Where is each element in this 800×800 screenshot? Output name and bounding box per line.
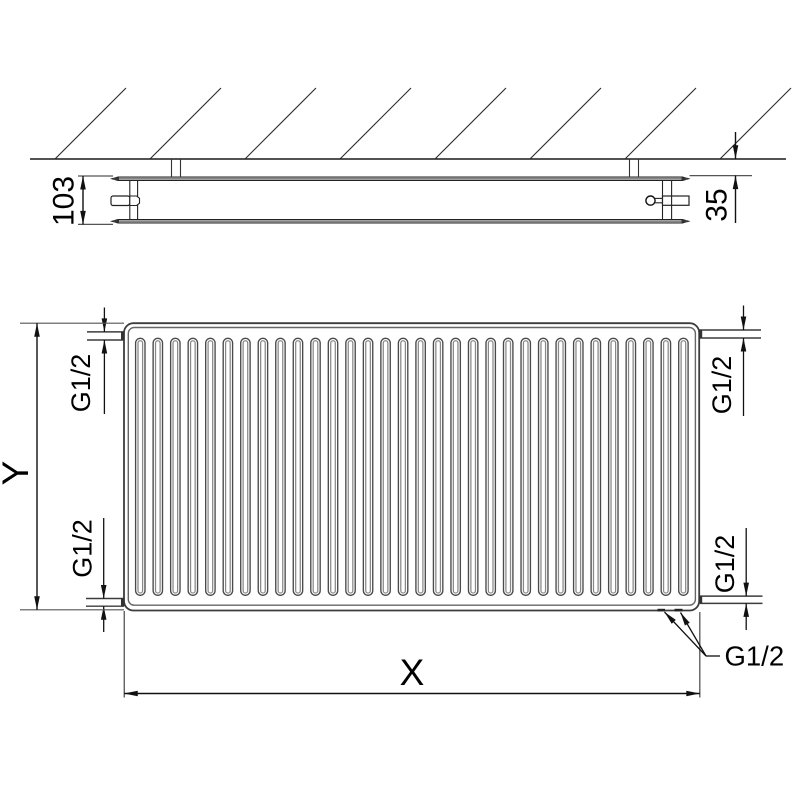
- svg-text:Y: Y: [0, 461, 36, 486]
- svg-text:103: 103: [48, 176, 81, 226]
- svg-text:G1/2: G1/2: [68, 519, 98, 578]
- svg-text:G1/2: G1/2: [725, 641, 785, 672]
- svg-text:G1/2: G1/2: [707, 356, 737, 415]
- svg-text:35: 35: [701, 188, 734, 221]
- svg-text:X: X: [400, 652, 425, 693]
- svg-text:G1/2: G1/2: [66, 354, 96, 413]
- svg-text:G1/2: G1/2: [710, 535, 740, 594]
